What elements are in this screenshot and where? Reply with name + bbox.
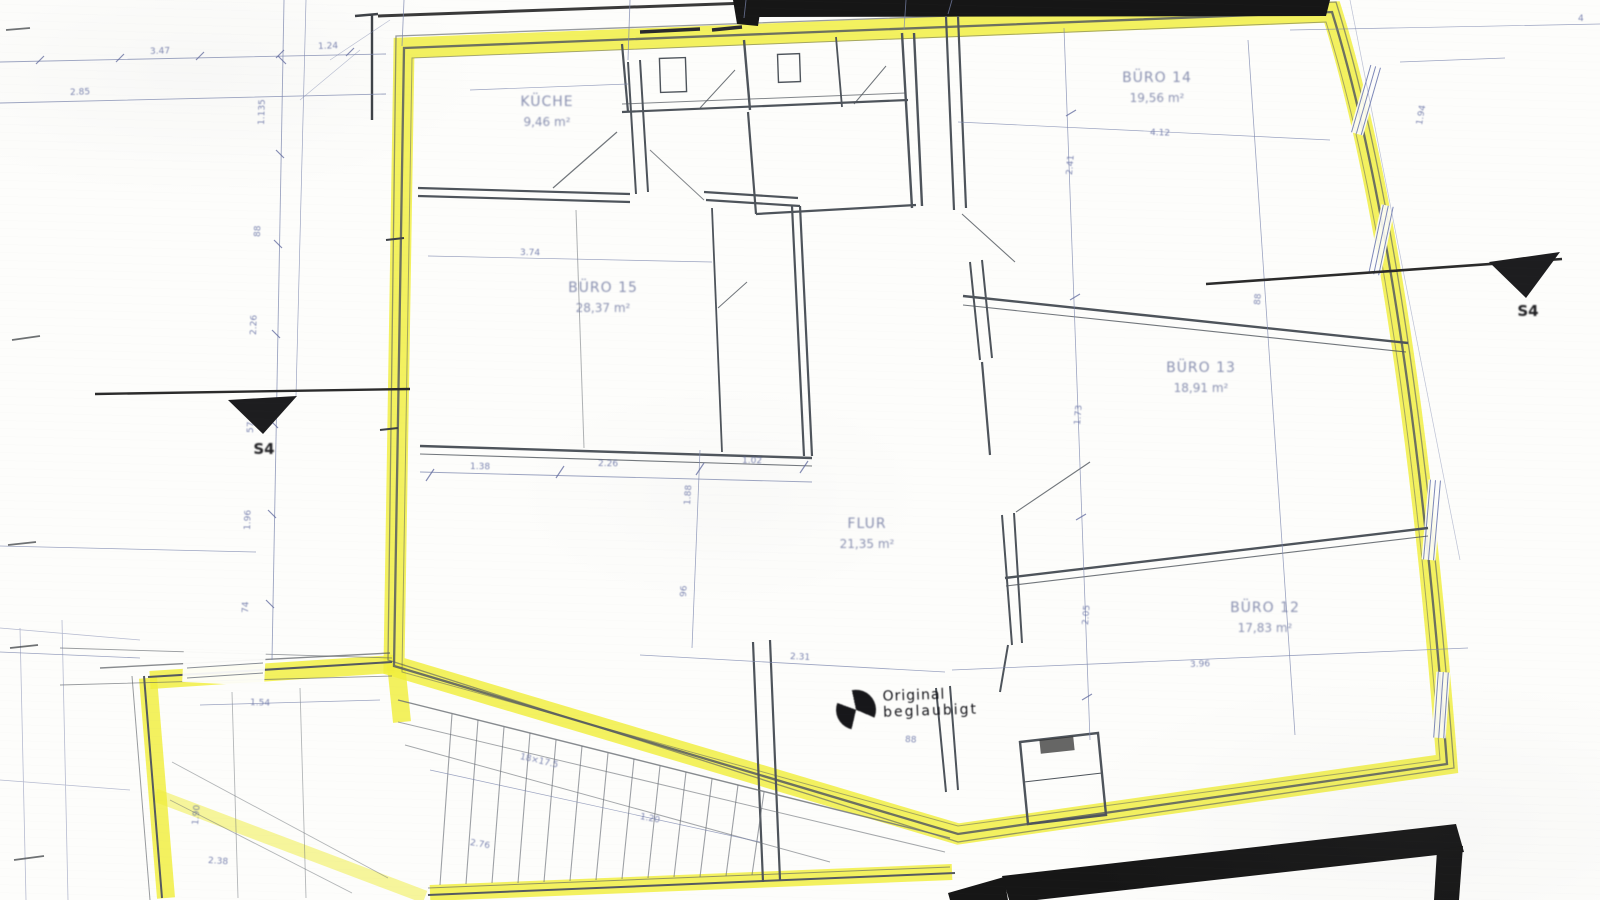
dimension-label: 2.31: [790, 652, 811, 663]
dimension-label: 1.94: [1415, 104, 1428, 125]
floor-plan-scan: KÜCHE 9,46 m² BÜRO 15 28,37 m² BÜRO 14 1…: [0, 0, 1600, 900]
dimension-label: 1.96: [243, 510, 254, 530]
dimension-label: 88: [905, 735, 917, 746]
section-label-right: S4: [1517, 302, 1538, 320]
dimension-label: 88: [1253, 293, 1264, 305]
dimension-label: 88: [253, 225, 263, 237]
dimension-label: 1.02: [742, 456, 762, 466]
dimension-label: 2.05: [1081, 605, 1093, 626]
dimension-label: 2.85: [70, 87, 90, 98]
room-label-buero-15: BÜRO 15 28,37 m²: [528, 278, 678, 317]
dimension-label: 74: [241, 601, 251, 613]
dimension-label: 2.38: [208, 856, 229, 867]
dimension-label: 18×17.5: [519, 752, 559, 771]
dimension-label: 1.90: [191, 805, 203, 826]
dimension-label: 3.74: [520, 248, 540, 258]
dimension-label: 1.38: [470, 462, 490, 472]
stamp-line2: beglaubigt: [883, 702, 978, 721]
dimension-label: 4: [1578, 14, 1584, 24]
dimension-label: 3.96: [1190, 659, 1210, 670]
dimension-label: 1.54: [250, 698, 270, 709]
dimension-label: 3.47: [150, 46, 170, 57]
room-label-flur: FLUR 21,35 m²: [792, 514, 942, 553]
dimension-label: 96: [679, 585, 690, 597]
plan-labels: KÜCHE 9,46 m² BÜRO 15 28,37 m² BÜRO 14 1…: [0, 0, 1600, 900]
section-label-left: S4: [253, 440, 274, 458]
dimension-label: 2.41: [1065, 155, 1077, 176]
dimension-label: 1.24: [318, 41, 338, 52]
certification-stamp: Original beglaubigt: [835, 686, 978, 731]
room-label-buero-14: BÜRO 14 19,56 m²: [1082, 68, 1232, 107]
dimension-label: 2.26: [249, 315, 260, 335]
room-label-kueche: KÜCHE 9,46 m²: [472, 92, 622, 131]
dimension-label: 4.12: [1150, 128, 1170, 139]
survey-mark-icon: [835, 689, 876, 730]
room-label-buero-12: BÜRO 12 17,83 m²: [1190, 598, 1340, 637]
dimension-label: 2.26: [598, 459, 618, 469]
dimension-label: 1.73: [1073, 405, 1085, 426]
dimension-label: 1.135: [257, 99, 268, 125]
dimension-label: 1.20: [639, 812, 661, 826]
dimension-label: 1.88: [683, 485, 694, 506]
dimension-label: 2.76: [469, 838, 490, 851]
room-label-buero-13: BÜRO 13 18,91 m²: [1126, 358, 1276, 397]
dimension-label: 57: [246, 421, 256, 433]
